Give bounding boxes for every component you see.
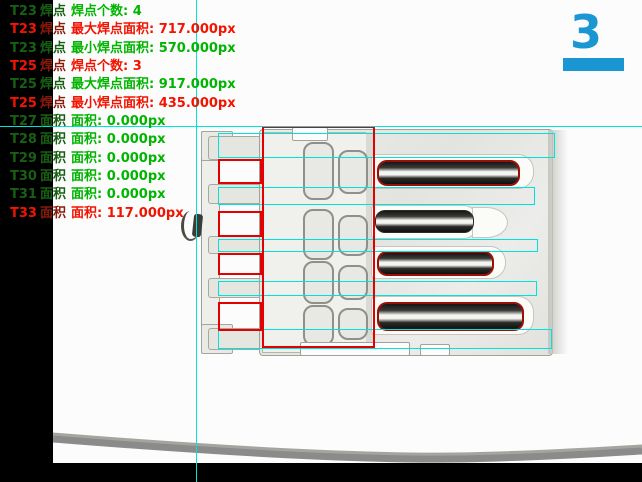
tool-id-label: T28 [10, 132, 37, 147]
vision-inspection-window: 3 T23焊点焊点个数: 4T23焊点最大焊点面积: 717.000pxT23焊… [0, 0, 642, 482]
tool-category-label: 焊点 [40, 77, 66, 92]
result-line: T25焊点焊点个数: 3 [10, 58, 236, 76]
station-counter-value: 3 [556, 6, 616, 58]
tool-category-label: 面积 [40, 114, 66, 129]
tool-id-label: T30 [10, 169, 37, 184]
tool-category-label: 焊点 [40, 59, 66, 74]
usb-pin-3 [377, 251, 494, 276]
result-message: 面积: 0.000px [71, 132, 166, 147]
tool-id-label: T27 [10, 114, 37, 129]
connector-right-shadow [548, 130, 568, 354]
result-message: 最大焊点面积: 717.000px [71, 22, 236, 37]
result-message: 最小焊点面积: 435.000px [71, 96, 236, 111]
tool-category-label: 面积 [40, 151, 66, 166]
roi-box-red[interactable] [218, 253, 262, 275]
result-message: 面积: 0.000px [71, 114, 166, 129]
tool-id-label: T31 [10, 187, 37, 202]
roi-box-red[interactable] [262, 126, 375, 348]
roi-box-red[interactable] [218, 302, 262, 331]
result-message: 焊点个数: 3 [71, 59, 142, 74]
result-line: T23焊点焊点个数: 4 [10, 3, 236, 21]
tool-id-label: T25 [10, 59, 37, 74]
tool-category-label: 面积 [40, 206, 66, 221]
tool-category-label: 面积 [40, 132, 66, 147]
result-message: 面积: 117.000px [71, 206, 184, 221]
result-message: 焊点个数: 4 [71, 4, 142, 19]
tool-category-label: 面积 [40, 187, 66, 202]
tool-category-label: 焊点 [40, 41, 66, 56]
result-line: T31面积面积: 0.000px [10, 186, 236, 204]
result-message: 面积: 0.000px [71, 169, 166, 184]
usb-pin-4 [377, 302, 524, 331]
result-line: T23焊点最大焊点面积: 717.000px [10, 21, 236, 39]
tool-category-label: 焊点 [40, 96, 66, 111]
tool-id-label: T29 [10, 151, 37, 166]
result-line: T30面积面积: 0.000px [10, 168, 236, 186]
result-line: T25焊点最大焊点面积: 917.000px [10, 76, 236, 94]
tool-id-label: T25 [10, 77, 37, 92]
tool-id-label: T33 [10, 206, 37, 221]
tool-category-label: 面积 [40, 169, 66, 184]
result-line: T25焊点最小焊点面积: 435.000px [10, 95, 236, 113]
usb-pin-2 [375, 210, 474, 233]
tool-id-label: T25 [10, 96, 37, 111]
inspection-results-list: T23焊点焊点个数: 4T23焊点最大焊点面积: 717.000pxT23焊点最… [10, 3, 236, 223]
result-line: T28面积面积: 0.000px [10, 131, 236, 149]
result-line: T29面积面积: 0.000px [10, 150, 236, 168]
result-message: 面积: 0.000px [71, 151, 166, 166]
result-message: 最大焊点面积: 917.000px [71, 77, 236, 92]
result-line: T23焊点最小焊点面积: 570.000px [10, 40, 236, 58]
tool-id-label: T23 [10, 4, 37, 19]
result-message: 面积: 0.000px [71, 187, 166, 202]
counter-underline-bar [563, 58, 624, 71]
tool-id-label: T23 [10, 22, 37, 37]
tool-category-label: 焊点 [40, 22, 66, 37]
result-message: 最小焊点面积: 570.000px [71, 41, 236, 56]
result-line: T33面积面积: 117.000px [10, 205, 236, 223]
tool-id-label: T23 [10, 41, 37, 56]
usb-pin-1 [377, 160, 520, 186]
tool-category-label: 焊点 [40, 4, 66, 19]
result-line: T27面积面积: 0.000px [10, 113, 236, 131]
